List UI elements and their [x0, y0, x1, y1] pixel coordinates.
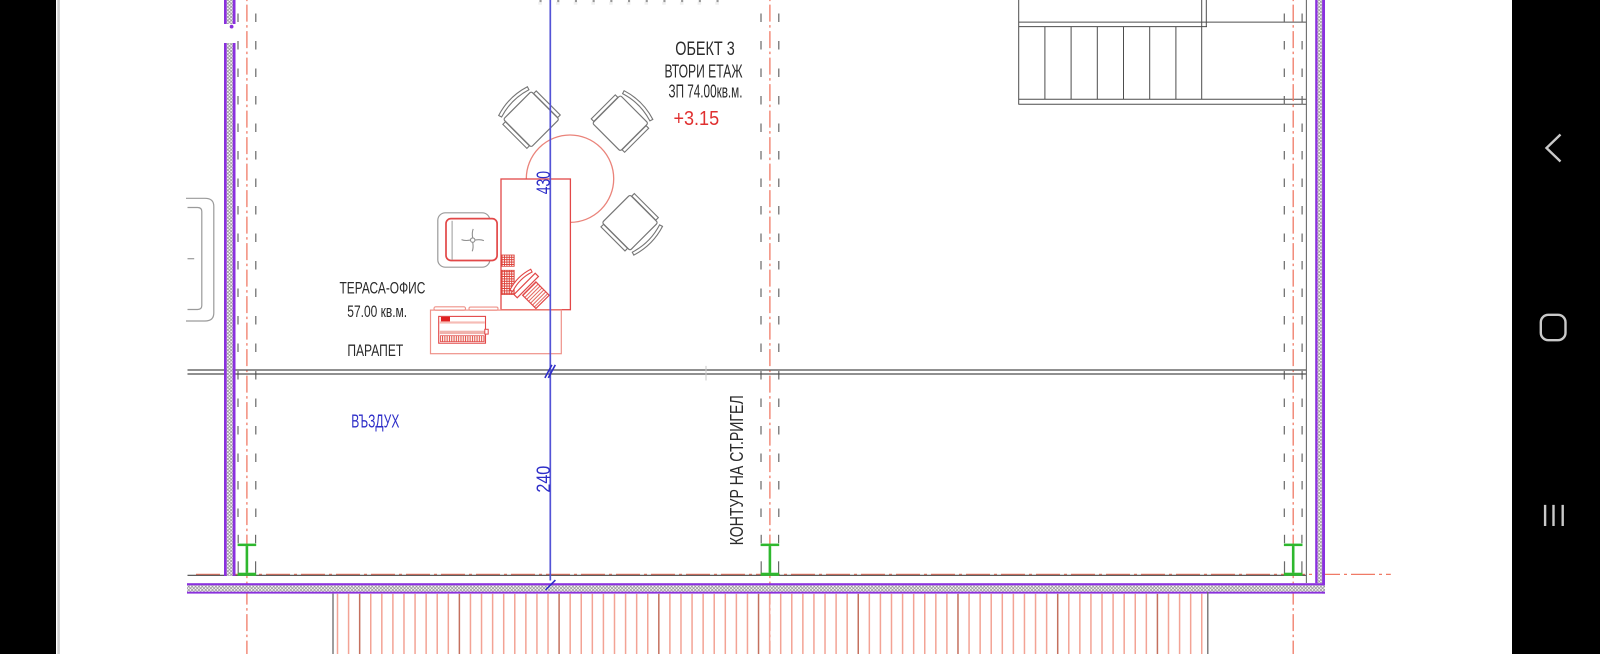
svg-text:ОБЕКТ 3: ОБЕКТ 3: [675, 39, 735, 60]
svg-text:ВЪЗДУХ: ВЪЗДУХ: [351, 411, 399, 431]
svg-text:+3.15: +3.15: [673, 107, 719, 130]
svg-text:ЗП 74.00кв.м.: ЗП 74.00кв.м.: [669, 81, 743, 102]
svg-text:ПАРАПЕТ: ПАРАПЕТ: [347, 341, 403, 360]
svg-text:57.00 кв.м.: 57.00 кв.м.: [347, 302, 407, 321]
svg-text:ТЕРАСА-ОФИС: ТЕРАСА-ОФИС: [340, 278, 426, 297]
svg-text:ВТОРИ ЕТАЖ: ВТОРИ ЕТАЖ: [665, 61, 743, 81]
svg-text:430: 430: [534, 171, 555, 194]
svg-text:240: 240: [534, 466, 555, 493]
svg-text:КОНТУР НА СТ.РИГЕЛ: КОНТУР НА СТ.РИГЕЛ: [727, 395, 747, 545]
